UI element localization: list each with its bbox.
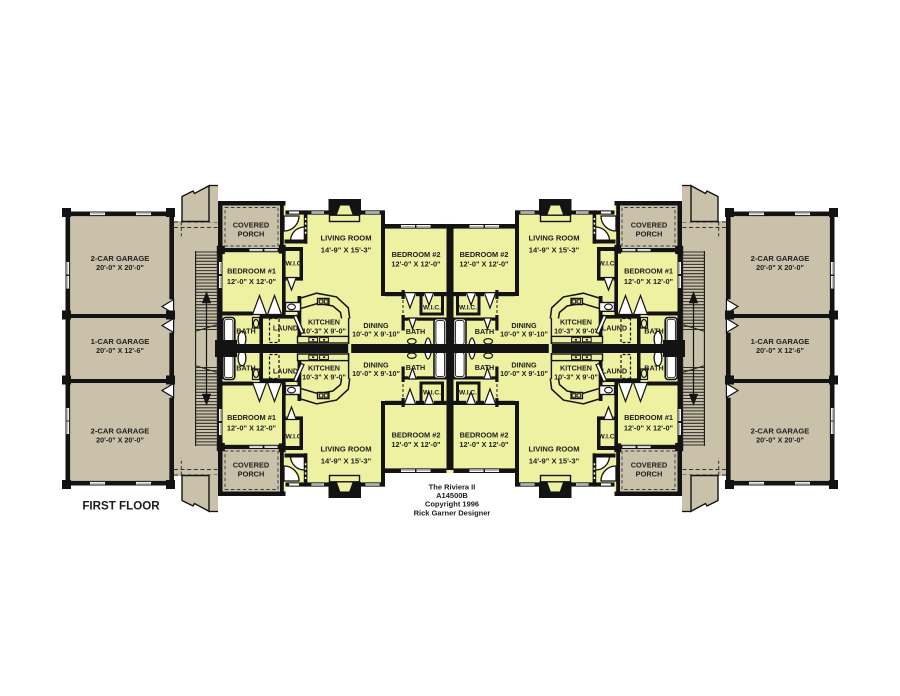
svg-text:10'-3" X 9'-0": 10'-3" X 9'-0" xyxy=(302,327,346,336)
svg-text:W.I.C: W.I.C xyxy=(598,261,614,268)
svg-text:W.I.C: W.I.C xyxy=(598,434,614,441)
svg-text:10'-3" X 9'-0": 10'-3" X 9'-0" xyxy=(554,373,598,382)
svg-text:14'-9" X 15'-3": 14'-9" X 15'-3" xyxy=(321,246,372,255)
svg-text:PORCH: PORCH xyxy=(238,230,265,239)
svg-text:20'-0" X 20'-0": 20'-0" X 20'-0" xyxy=(756,263,804,272)
svg-text:12'-0" X 12'-0": 12'-0" X 12'-0" xyxy=(391,260,441,269)
svg-text:BEDROOM #2: BEDROOM #2 xyxy=(460,250,509,259)
svg-text:COVERED: COVERED xyxy=(233,221,270,230)
svg-text:2-CAR GARAGE: 2-CAR GARAGE xyxy=(751,254,810,263)
svg-text:BATH: BATH xyxy=(644,364,663,373)
svg-text:FIRST FLOOR: FIRST FLOOR xyxy=(82,500,160,513)
svg-text:BATH: BATH xyxy=(406,363,425,372)
svg-text:LAUND: LAUND xyxy=(273,324,298,333)
svg-text:W.I.C: W.I.C xyxy=(285,434,301,441)
svg-text:LAUND: LAUND xyxy=(602,367,627,376)
svg-text:KITCHEN: KITCHEN xyxy=(308,318,340,327)
svg-text:LIVING ROOM: LIVING ROOM xyxy=(320,234,371,243)
svg-text:BEDROOM #1: BEDROOM #1 xyxy=(227,413,276,422)
svg-text:LIVING ROOM: LIVING ROOM xyxy=(528,445,579,454)
svg-text:LIVING ROOM: LIVING ROOM xyxy=(320,445,371,454)
svg-text:W.I.C.: W.I.C. xyxy=(423,390,441,397)
svg-text:PORCH: PORCH xyxy=(238,470,265,479)
svg-text:COVERED: COVERED xyxy=(631,460,668,469)
svg-text:BEDROOM #1: BEDROOM #1 xyxy=(624,267,673,276)
svg-text:LAUND: LAUND xyxy=(602,324,627,333)
svg-text:LAUND: LAUND xyxy=(273,367,298,376)
svg-text:12'-0" X 12'-0": 12'-0" X 12'-0" xyxy=(624,424,674,433)
svg-text:14'-9" X 15'-3": 14'-9" X 15'-3" xyxy=(321,457,372,466)
svg-text:BATH: BATH xyxy=(475,363,494,372)
svg-text:10'-0" X 9'-10": 10'-0" X 9'-10" xyxy=(352,369,400,378)
svg-text:KITCHEN: KITCHEN xyxy=(560,364,592,373)
svg-text:W.I.C.: W.I.C. xyxy=(459,390,477,397)
svg-text:12'-0" X 12'-0": 12'-0" X 12'-0" xyxy=(391,440,441,449)
svg-text:PORCH: PORCH xyxy=(636,230,663,239)
svg-text:W.I.C.: W.I.C. xyxy=(423,305,441,312)
svg-text:BATH: BATH xyxy=(236,364,255,373)
svg-text:12'-0" X 12'-0": 12'-0" X 12'-0" xyxy=(459,440,509,449)
svg-text:20'-0" X 20'-0": 20'-0" X 20'-0" xyxy=(96,436,144,445)
svg-text:COVERED: COVERED xyxy=(631,221,668,230)
svg-text:BEDROOM #2: BEDROOM #2 xyxy=(460,431,509,440)
svg-text:2-CAR GARAGE: 2-CAR GARAGE xyxy=(751,427,810,436)
svg-text:10'-3" X 9'-0": 10'-3" X 9'-0" xyxy=(554,327,598,336)
svg-text:20'-0" X 20'-0": 20'-0" X 20'-0" xyxy=(756,436,804,445)
svg-text:10'-0" X 9'-10": 10'-0" X 9'-10" xyxy=(500,369,548,378)
svg-text:14'-9" X 15'-3": 14'-9" X 15'-3" xyxy=(529,246,580,255)
svg-text:20'-0" X 12'-6": 20'-0" X 12'-6" xyxy=(756,346,804,355)
svg-text:2-CAR GARAGE: 2-CAR GARAGE xyxy=(91,254,150,263)
svg-text:W.I.C: W.I.C xyxy=(285,261,301,268)
svg-text:LIVING ROOM: LIVING ROOM xyxy=(528,234,579,243)
svg-text:W.I.C.: W.I.C. xyxy=(459,305,477,312)
svg-text:BEDROOM #2: BEDROOM #2 xyxy=(392,250,441,259)
svg-text:20'-0" X 12'-6": 20'-0" X 12'-6" xyxy=(96,346,144,355)
svg-text:14'-9" X 15'-3": 14'-9" X 15'-3" xyxy=(529,457,580,466)
svg-text:Copyright 1996: Copyright 1996 xyxy=(425,500,479,509)
svg-text:20'-0" X 20'-0": 20'-0" X 20'-0" xyxy=(96,263,144,272)
svg-text:BEDROOM #1: BEDROOM #1 xyxy=(624,413,673,422)
svg-text:1-CAR GARAGE: 1-CAR GARAGE xyxy=(751,337,810,346)
svg-text:10'-0" X 9'-10": 10'-0" X 9'-10" xyxy=(500,330,548,339)
svg-text:PORCH: PORCH xyxy=(636,470,663,479)
svg-text:COVERED: COVERED xyxy=(233,460,270,469)
svg-text:12'-0" X 12'-0": 12'-0" X 12'-0" xyxy=(227,277,277,286)
svg-text:1-CAR GARAGE: 1-CAR GARAGE xyxy=(91,337,150,346)
svg-text:BEDROOM #2: BEDROOM #2 xyxy=(392,431,441,440)
svg-text:BATH: BATH xyxy=(475,327,494,336)
svg-text:Rick Garner Designer: Rick Garner Designer xyxy=(414,509,491,518)
svg-text:BATH: BATH xyxy=(406,327,425,336)
svg-text:2-CAR GARAGE: 2-CAR GARAGE xyxy=(91,427,150,436)
svg-text:10'-3" X 9'-0": 10'-3" X 9'-0" xyxy=(302,373,346,382)
svg-text:KITCHEN: KITCHEN xyxy=(308,364,340,373)
svg-text:12'-0" X 12'-0": 12'-0" X 12'-0" xyxy=(459,260,509,269)
svg-text:12'-0" X 12'-0": 12'-0" X 12'-0" xyxy=(624,277,674,286)
svg-text:10'-0" X 9'-10": 10'-0" X 9'-10" xyxy=(352,330,400,339)
svg-text:12'-0" X 12'-0": 12'-0" X 12'-0" xyxy=(227,424,277,433)
svg-text:BATH: BATH xyxy=(236,327,255,336)
svg-text:BEDROOM #1: BEDROOM #1 xyxy=(227,267,276,276)
svg-text:KITCHEN: KITCHEN xyxy=(560,318,592,327)
svg-text:BATH: BATH xyxy=(644,327,663,336)
